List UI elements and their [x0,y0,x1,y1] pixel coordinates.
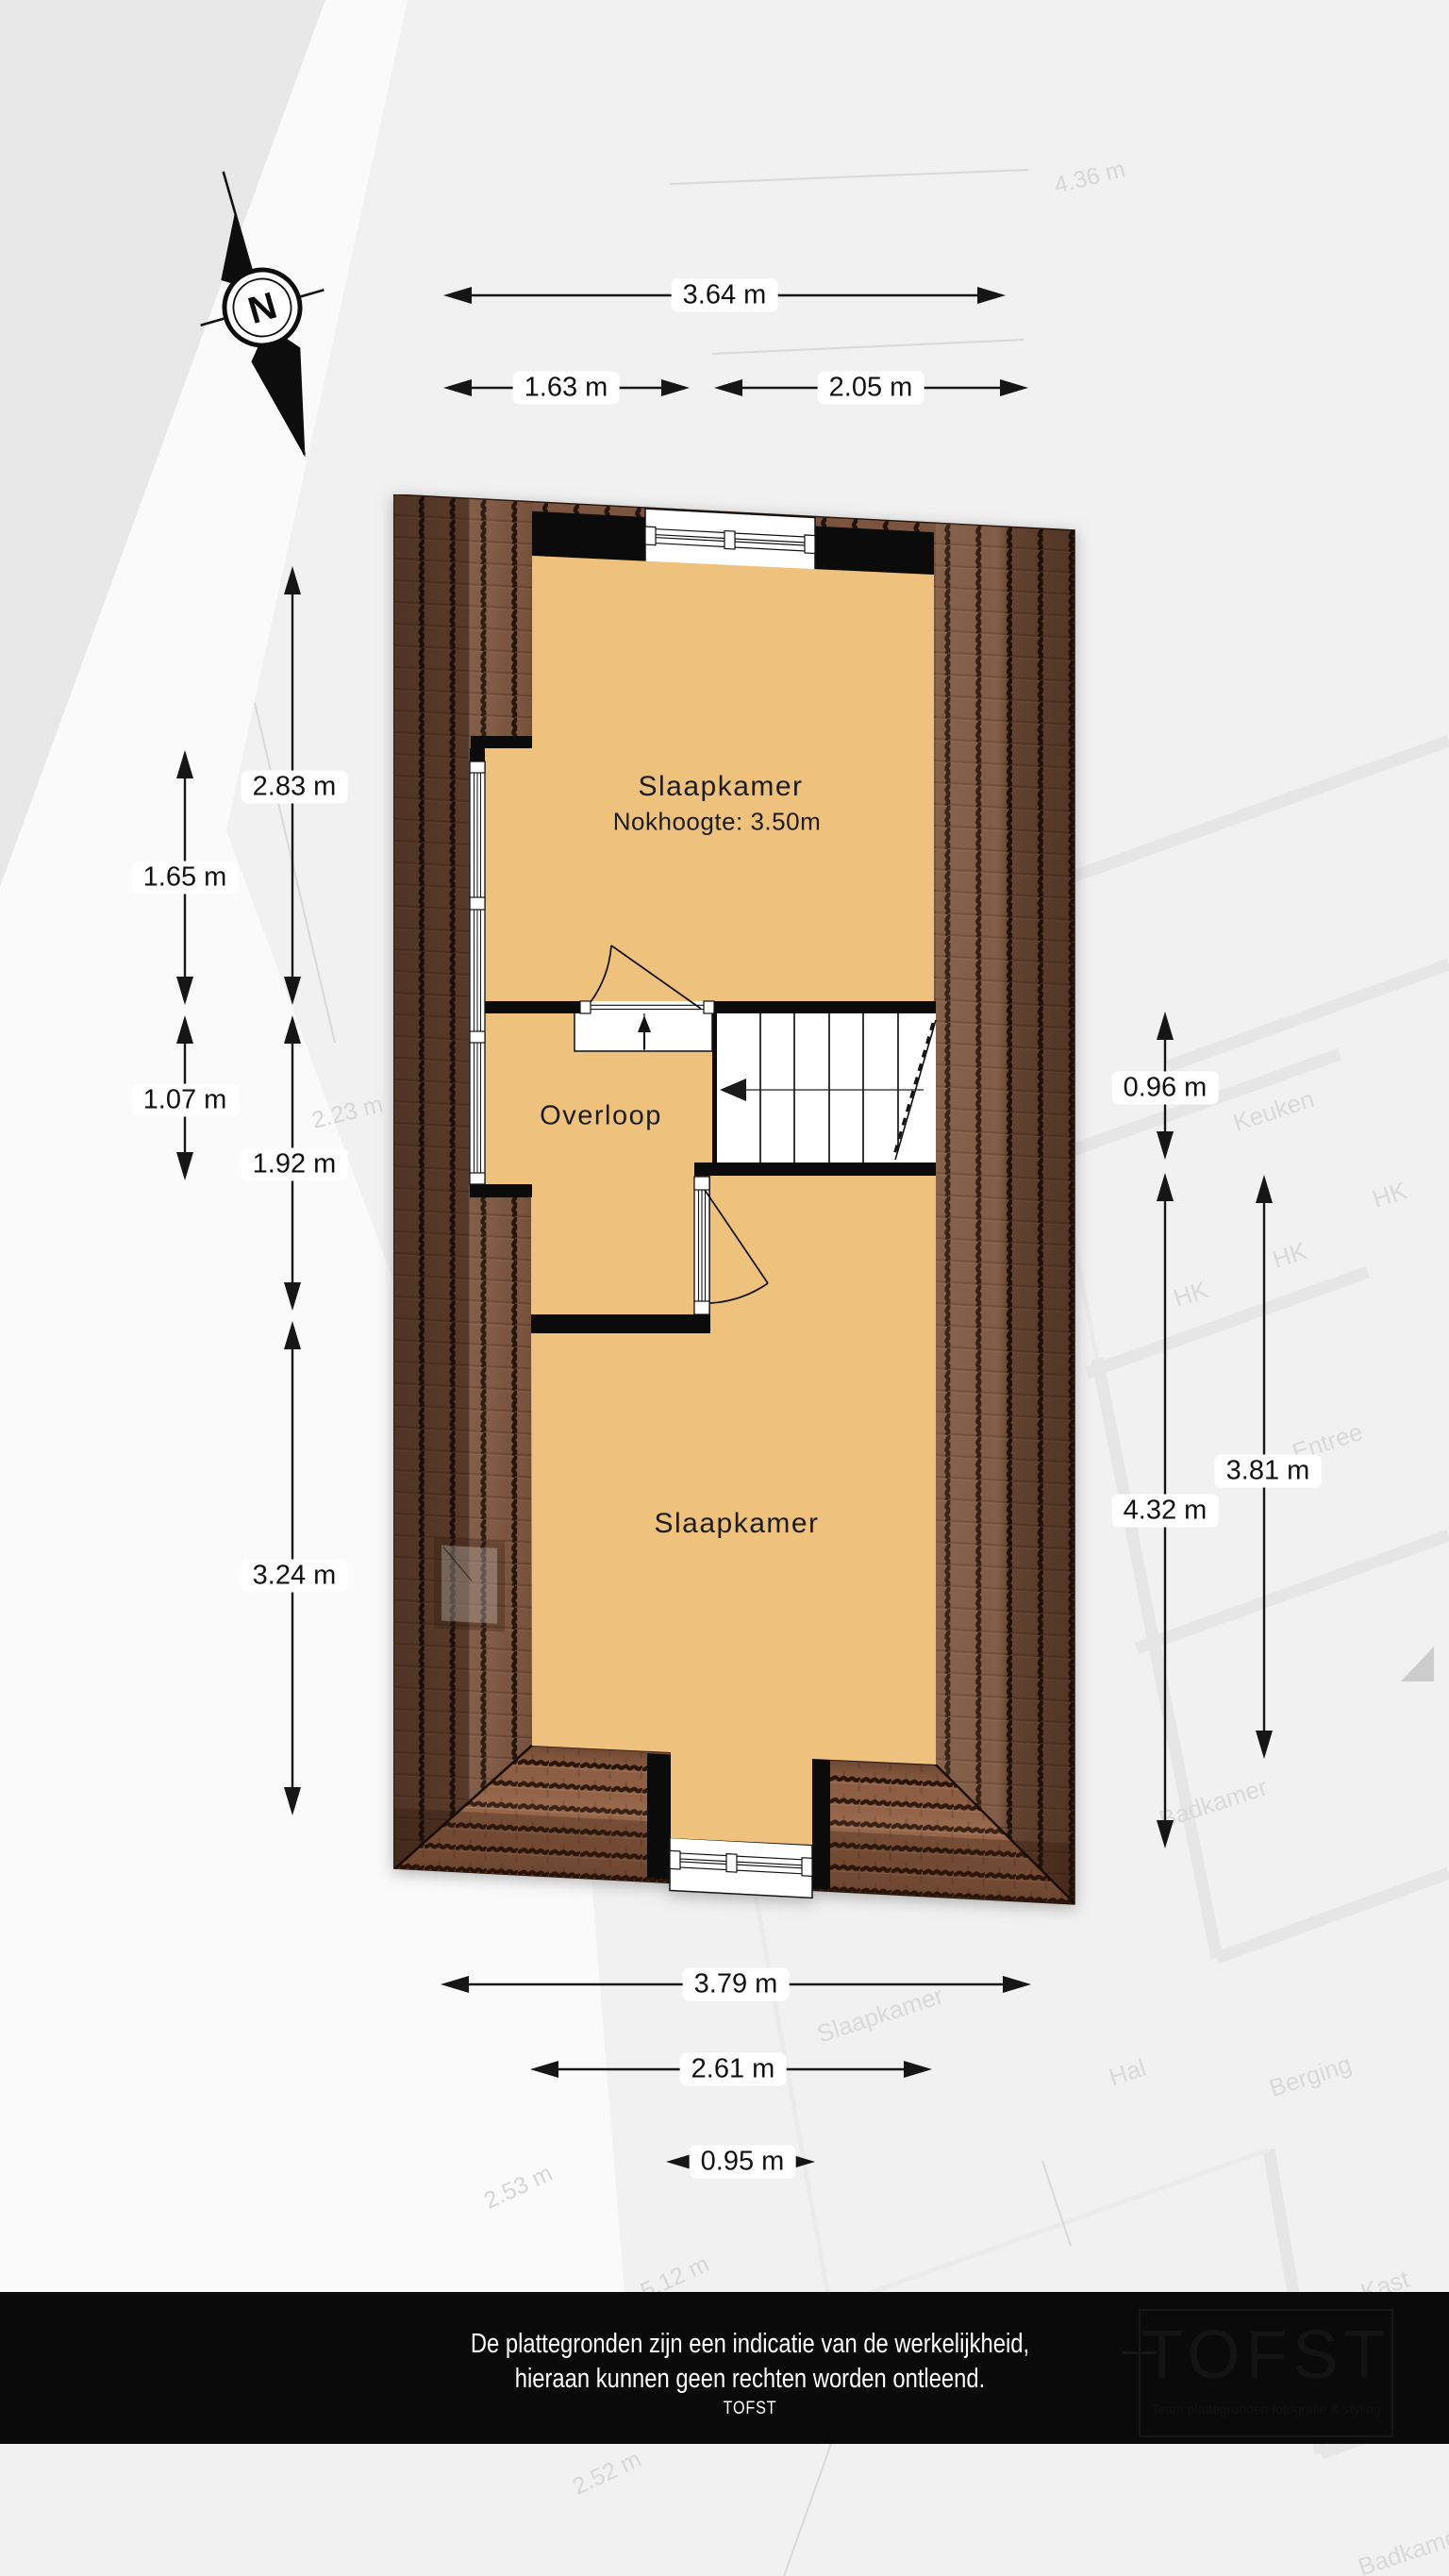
svg-text:TOFST: TOFST [1141,2317,1391,2393]
svg-text:Team plattegronden fotografie: Team plattegronden fotografie & styling [1152,2401,1381,2417]
